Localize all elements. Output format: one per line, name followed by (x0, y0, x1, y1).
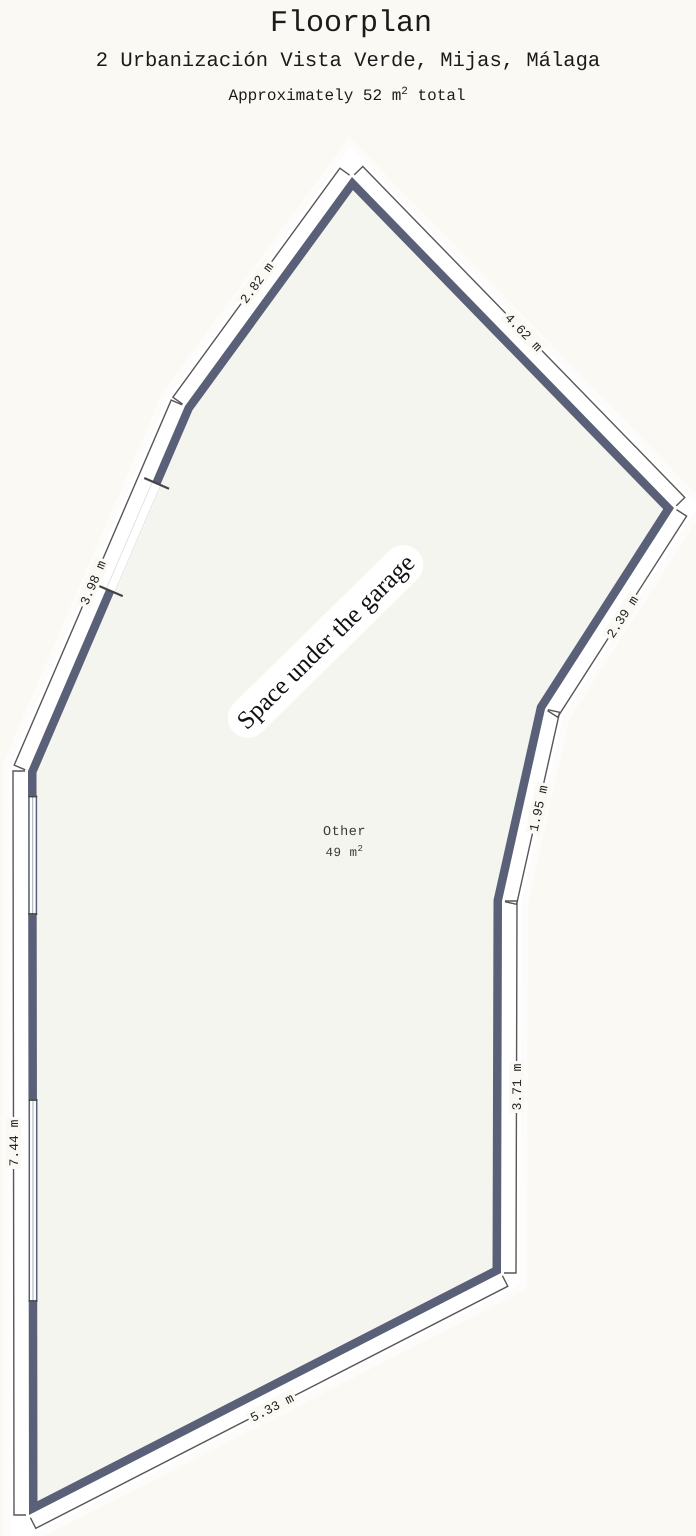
svg-text:7.44 m: 7.44 m (7, 1119, 22, 1166)
svg-text:3.71 m: 3.71 m (510, 1063, 525, 1110)
svg-text:Other: Other (323, 825, 366, 840)
svg-text:Floorplan: Floorplan (270, 7, 432, 41)
svg-text:Approximately 52 m2 total: Approximately 52 m2 total (228, 86, 465, 105)
svg-text:2 Urbanización Vista Verde, Mi: 2 Urbanización Vista Verde, Mijas, Málag… (96, 50, 600, 73)
